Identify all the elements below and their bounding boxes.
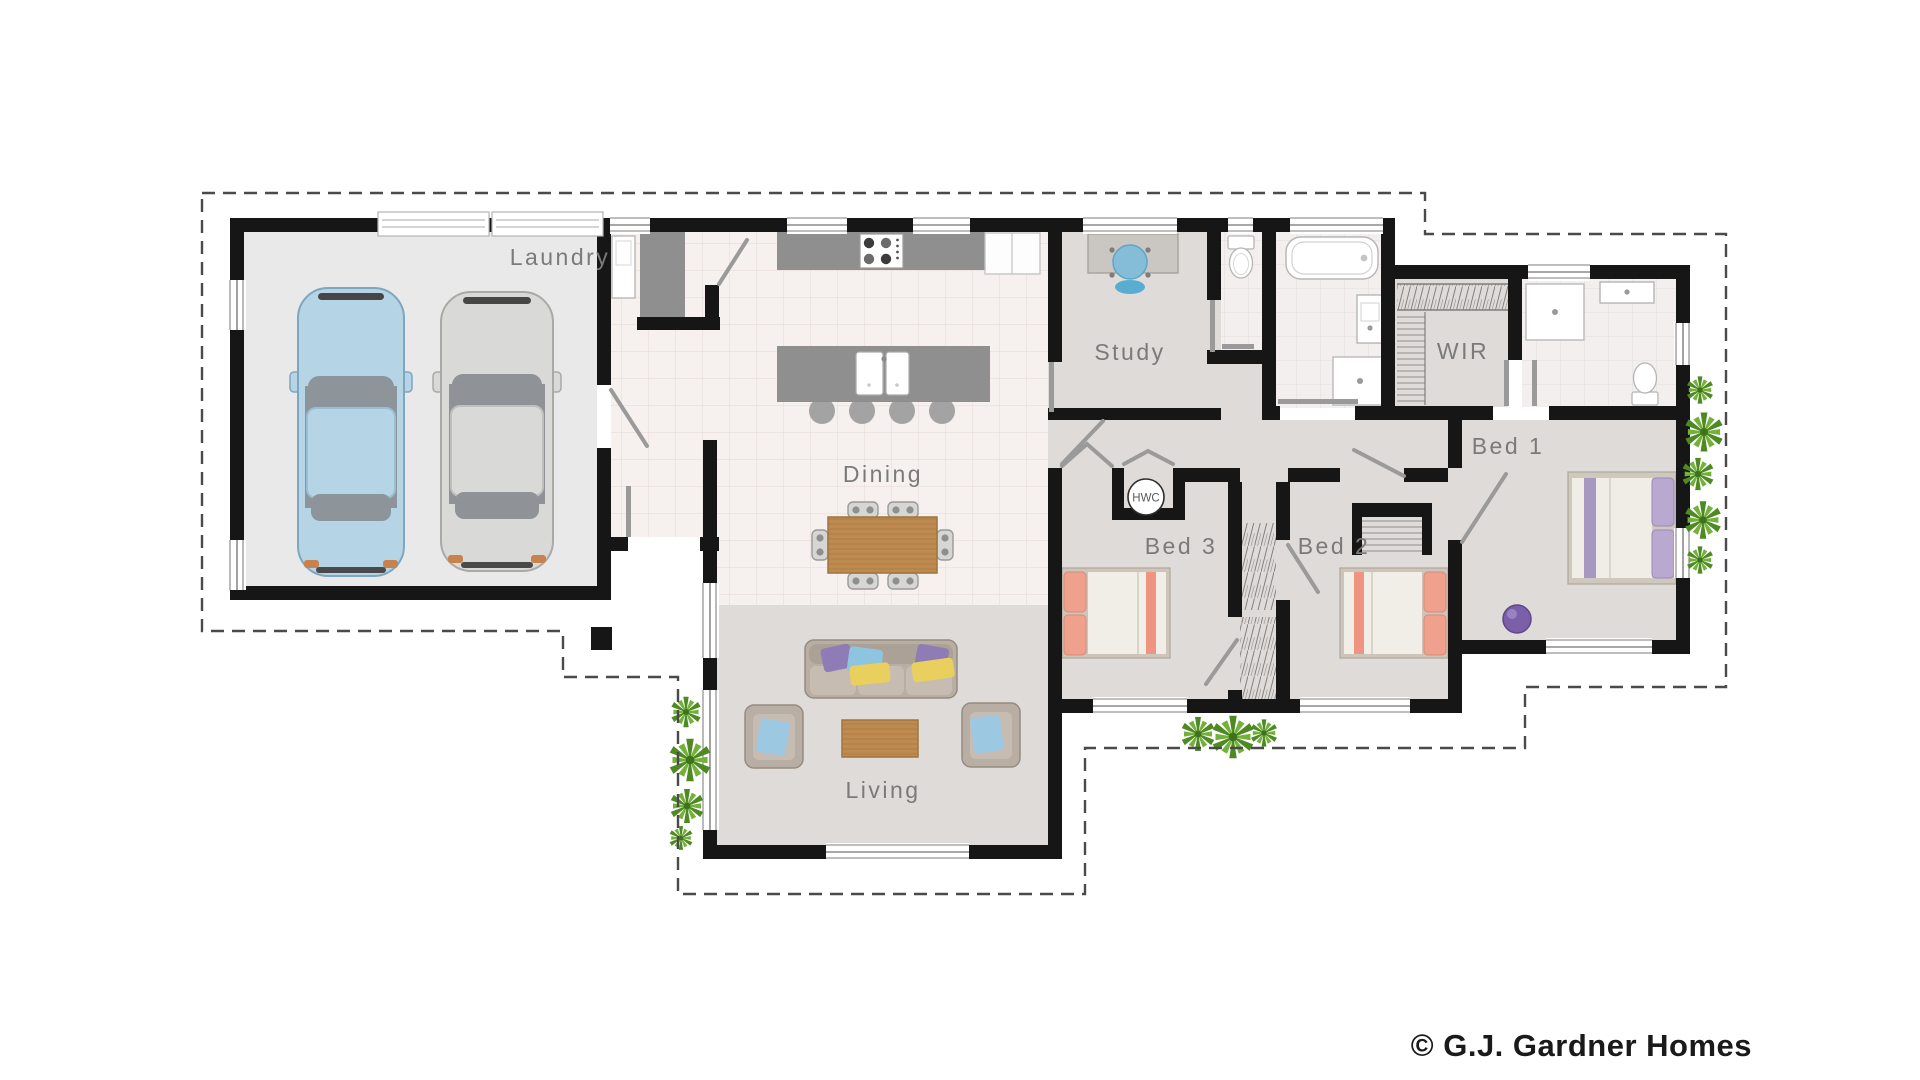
plant-icon bbox=[671, 697, 700, 728]
shower-symbol bbox=[1526, 284, 1584, 340]
bed-symbol bbox=[1062, 568, 1170, 658]
hwc-label: HWC bbox=[1132, 493, 1159, 505]
copyright-text: © G.J. Gardner Homes bbox=[1411, 1028, 1752, 1063]
garage-door-symbol bbox=[492, 212, 603, 236]
wir-slider bbox=[1504, 360, 1509, 406]
armchair-symbol bbox=[745, 705, 803, 768]
porch-post bbox=[591, 627, 612, 650]
bathtub-symbol bbox=[1286, 237, 1378, 279]
bathroom-slider bbox=[1278, 399, 1358, 404]
armchair-symbol bbox=[962, 703, 1020, 767]
study-cavity-slider bbox=[1049, 362, 1054, 412]
bed-symbol bbox=[1340, 568, 1448, 658]
plant-icon bbox=[1687, 376, 1713, 403]
plant-icon bbox=[671, 789, 703, 823]
cushion-yellow bbox=[849, 662, 891, 686]
sink-symbol bbox=[856, 352, 909, 395]
car-silver-symbol bbox=[433, 292, 561, 571]
room-label-bed1: Bed 1 bbox=[1472, 433, 1545, 459]
plant-icon bbox=[1685, 412, 1722, 451]
ottoman-symbol bbox=[1503, 605, 1531, 633]
laundry-tub-symbol bbox=[612, 236, 635, 298]
hwc-symbol: HWC bbox=[1128, 479, 1164, 515]
cooktop-symbol bbox=[860, 234, 903, 268]
room-label-wir: WIR bbox=[1437, 338, 1489, 364]
ensuite-slider bbox=[1532, 360, 1537, 406]
shower-symbol bbox=[1333, 357, 1387, 405]
room-label-bed3: Bed 3 bbox=[1145, 533, 1218, 559]
plant-icon bbox=[670, 826, 693, 850]
plant-icon bbox=[1213, 716, 1254, 759]
room-label-laundry: Laundry bbox=[510, 244, 611, 270]
floor-plan-page: HWC Laundry Dining Living Study WIR Bed … bbox=[0, 0, 1920, 1080]
front-door bbox=[626, 486, 631, 537]
plant-icon bbox=[1182, 717, 1214, 751]
room-label-dining: Dining bbox=[843, 461, 923, 487]
room-label-living: Living bbox=[845, 777, 920, 803]
car-blue-symbol bbox=[290, 288, 412, 576]
wc-slider bbox=[1222, 344, 1254, 349]
room-label-study: Study bbox=[1094, 339, 1165, 365]
wardrobe-symbol bbox=[1240, 523, 1276, 610]
vanity-symbol bbox=[1600, 282, 1654, 303]
toilet-symbol bbox=[1632, 363, 1658, 405]
vanity-symbol bbox=[1357, 295, 1383, 343]
bed-symbol bbox=[1568, 472, 1676, 584]
plant-icon bbox=[1251, 719, 1277, 746]
toilet-symbol bbox=[1228, 236, 1254, 278]
room-label-bed2: Bed 2 bbox=[1298, 533, 1371, 559]
office-chair-symbol bbox=[1109, 245, 1150, 294]
garage-door-symbol bbox=[378, 212, 489, 236]
study-cavity-slider bbox=[1210, 300, 1215, 352]
wc-room bbox=[1228, 236, 1254, 278]
floor-plan-svg: HWC Laundry Dining Living Study WIR Bed … bbox=[0, 0, 1920, 1080]
laundry-cabinet-symbol bbox=[640, 232, 685, 320]
wardrobe-symbol bbox=[1240, 617, 1276, 699]
